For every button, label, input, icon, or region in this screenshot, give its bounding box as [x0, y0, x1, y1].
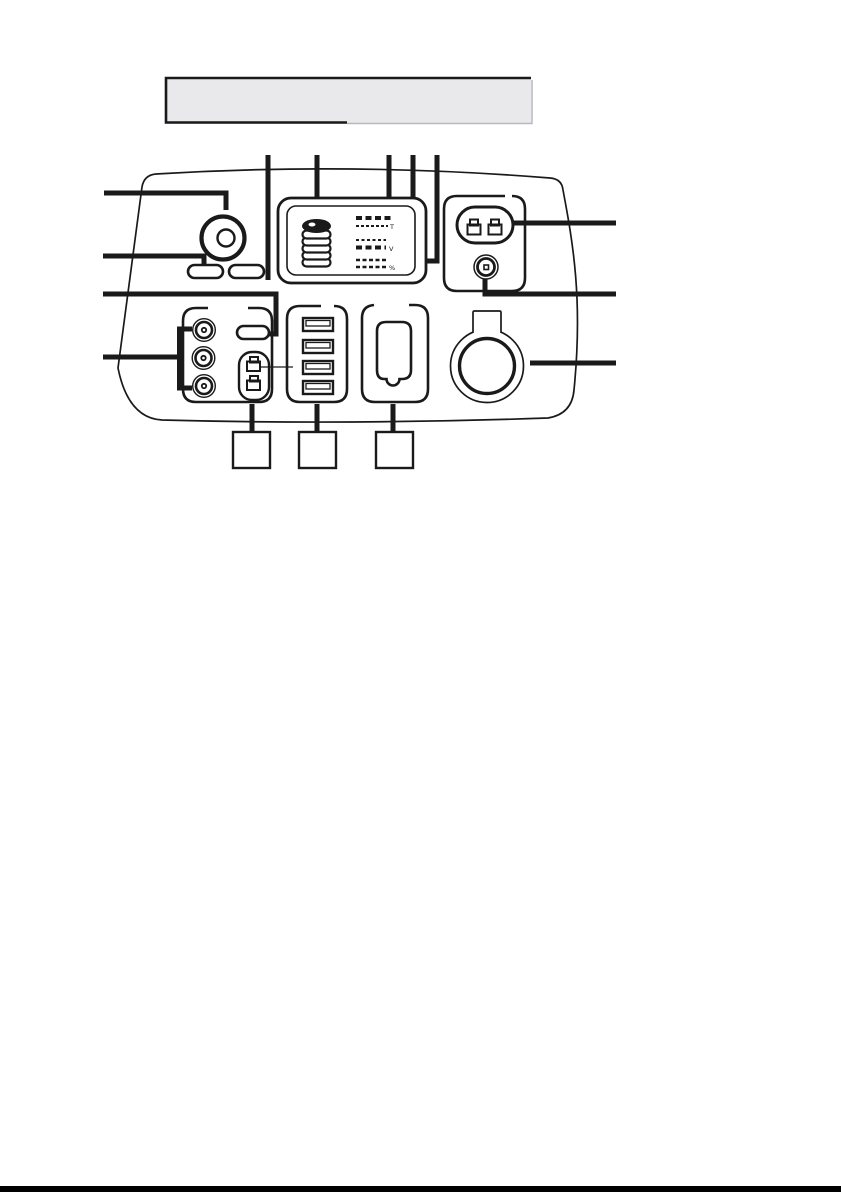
- barrel-jack-1-pin: [202, 328, 206, 332]
- callouts-bottom: [233, 404, 413, 468]
- car-socket: [460, 339, 515, 394]
- callout-line-left-button: [103, 256, 204, 264]
- manual-page: T V %: [0, 0, 841, 1192]
- row2-unit: V: [389, 245, 394, 253]
- usb-port-2-tongue: [306, 343, 330, 349]
- covered-port-with-notch: [377, 322, 411, 386]
- callout-line-dial: [104, 193, 226, 210]
- left-pill-button: [188, 265, 223, 278]
- usb-port-3-tongue: [306, 364, 330, 370]
- battery-cap: [302, 219, 331, 233]
- callout-bracket-dc-jacks: [180, 329, 193, 388]
- ac-outlet: [457, 207, 513, 243]
- display-section: T V %: [278, 198, 426, 283]
- row1-unit: T: [389, 223, 394, 231]
- usb-port-1-tongue: [306, 321, 330, 327]
- rotary-dial-center: [218, 230, 235, 247]
- title-box-fill: [165, 78, 531, 124]
- barrel-jack-2-pin: [201, 356, 205, 360]
- car-socket-section: [451, 311, 524, 403]
- front-panel-diagram: T V %: [0, 0, 841, 500]
- battery-level-stack-icon: [302, 219, 331, 267]
- usb-ports: [303, 318, 333, 394]
- callout-box-3: [376, 432, 413, 468]
- pill-slot: [237, 326, 269, 339]
- accessory-port-section: [362, 305, 428, 402]
- usb-section: [287, 306, 347, 402]
- dc-input-jack: [478, 259, 495, 276]
- ac-section: [444, 196, 525, 291]
- callout-box-2: [299, 432, 336, 468]
- right-pill-button: [229, 265, 264, 278]
- callout-box-1: [233, 432, 270, 468]
- row3-unit: %: [389, 264, 395, 272]
- usb-port-4-tongue: [306, 384, 330, 390]
- car-socket-tab: [473, 311, 501, 333]
- title-box: [165, 78, 532, 124]
- control-section: [188, 217, 264, 279]
- battery-cap-highlight: [309, 223, 316, 227]
- callout-lines-bottom: [252, 404, 393, 433]
- barrel-jacks: [192, 319, 215, 398]
- barrel-jack-3-pin: [202, 384, 206, 388]
- page-footer-rule: [0, 1186, 841, 1192]
